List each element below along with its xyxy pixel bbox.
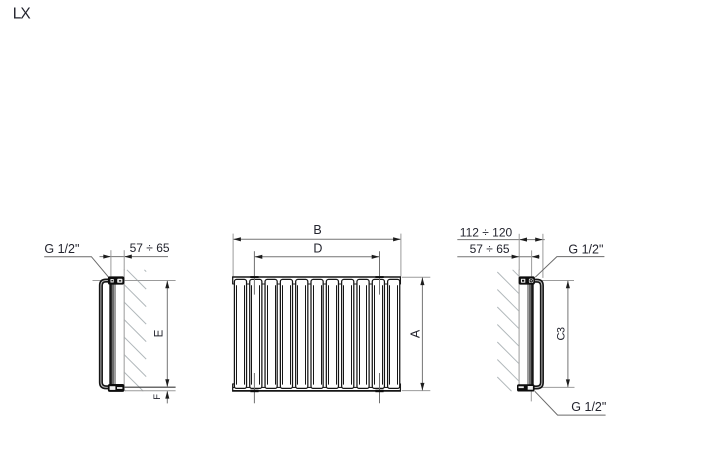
- svg-text:LX: LX: [13, 5, 32, 22]
- svg-text:G 1/2": G 1/2": [571, 400, 606, 414]
- svg-text:C3: C3: [555, 327, 567, 340]
- svg-text:B: B: [313, 223, 321, 237]
- svg-text:57 ÷ 65: 57 ÷ 65: [470, 242, 510, 256]
- svg-text:E: E: [153, 329, 165, 337]
- svg-text:D: D: [313, 242, 322, 256]
- svg-text:F: F: [152, 394, 163, 400]
- svg-text:G 1/2": G 1/2": [568, 242, 603, 256]
- svg-text:A: A: [408, 329, 422, 338]
- svg-text:57 ÷ 65: 57 ÷ 65: [130, 241, 170, 255]
- svg-text:G 1/2": G 1/2": [44, 242, 79, 256]
- svg-text:112 ÷ 120: 112 ÷ 120: [460, 226, 513, 240]
